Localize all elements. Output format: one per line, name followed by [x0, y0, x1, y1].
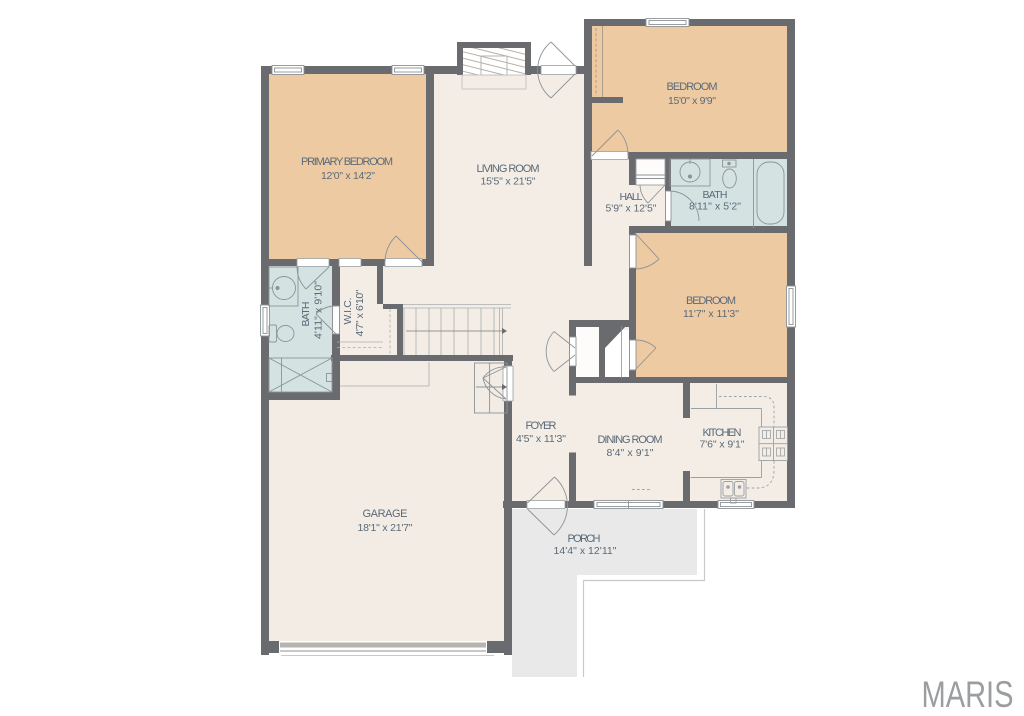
svg-text:8'11" x 5'2": 8'11" x 5'2" [689, 201, 741, 213]
svg-text:8'4" x 9'1": 8'4" x 9'1" [607, 447, 654, 459]
svg-text:5'9" x 12'5": 5'9" x 12'5" [606, 203, 657, 215]
svg-text:W.I.C.: W.I.C. [342, 298, 354, 325]
svg-text:4'5" x 11'3": 4'5" x 11'3" [516, 433, 566, 445]
svg-text:DINING ROOM: DINING ROOM [598, 434, 663, 446]
svg-text:4'11" x 9'10": 4'11" x 9'10" [313, 281, 325, 339]
svg-text:15'5" x 21'5": 15'5" x 21'5" [481, 176, 536, 188]
svg-text:FOYER: FOYER [526, 420, 557, 432]
svg-text:4'7" x 6'10": 4'7" x 6'10" [354, 289, 366, 336]
svg-text:12'0" x 14'2": 12'0" x 14'2" [321, 170, 375, 182]
svg-text:KITCHEN: KITCHEN [703, 427, 742, 439]
svg-text:HALL: HALL [620, 191, 643, 203]
svg-text:LIVING ROOM: LIVING ROOM [477, 163, 540, 175]
svg-text:BATH: BATH [300, 302, 312, 327]
svg-text:BEDROOM: BEDROOM [686, 295, 736, 307]
svg-text:14'4" x 12'11": 14'4" x 12'11" [554, 545, 617, 557]
svg-text:PRIMARY BEDROOM: PRIMARY BEDROOM [301, 156, 393, 168]
svg-text:BEDROOM: BEDROOM [667, 81, 718, 93]
svg-text:PORCH: PORCH [568, 533, 601, 545]
svg-text:18'1" x 21'7": 18'1" x 21'7" [358, 522, 413, 534]
svg-text:MARIS: MARIS [922, 674, 1014, 715]
svg-text:GARAGE: GARAGE [363, 508, 408, 520]
svg-text:11'7" x 11'3": 11'7" x 11'3" [683, 308, 739, 320]
svg-text:15'0" x 9'9": 15'0" x 9'9" [668, 95, 716, 107]
svg-text:BATH: BATH [703, 189, 728, 201]
svg-text:7'6" x 9'1": 7'6" x 9'1" [700, 439, 745, 451]
